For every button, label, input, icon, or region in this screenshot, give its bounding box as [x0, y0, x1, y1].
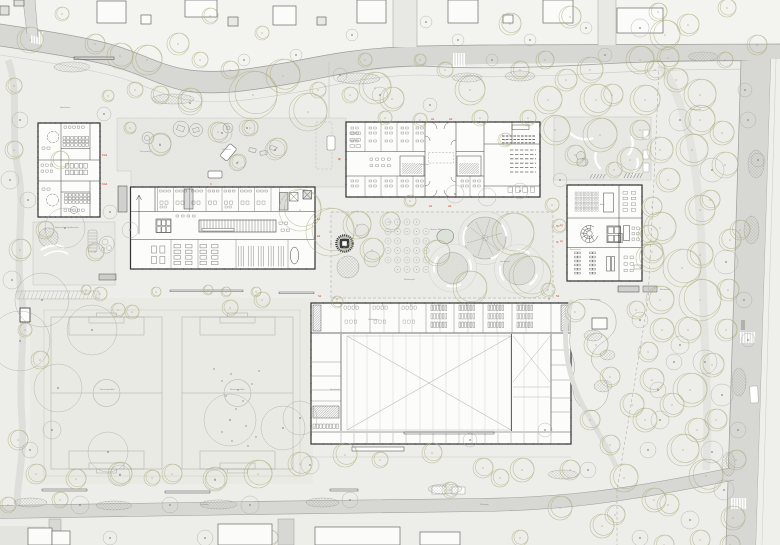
- svg-text:Umkleiden: Umkleiden: [368, 319, 379, 321]
- svg-text:II): II): [556, 240, 558, 244]
- svg-text:Rasenspielfeld: Rasenspielfeld: [100, 389, 115, 391]
- svg-text:Kletterspiel: Kletterspiel: [404, 278, 415, 281]
- svg-text:I I: I I: [336, 297, 338, 301]
- svg-text:Sporthalle: Sporthalle: [330, 388, 341, 391]
- svg-text:E2: E2: [317, 234, 321, 238]
- svg-text:Parkweg: Parkweg: [480, 503, 489, 506]
- svg-text:Sandspiel: Sandspiel: [500, 261, 510, 263]
- svg-text:M): M): [338, 157, 341, 161]
- svg-text:I I: I I: [548, 297, 550, 301]
- svg-text:Rasenspielfeld: Rasenspielfeld: [230, 389, 245, 391]
- svg-text:H1: H1: [431, 117, 435, 121]
- svg-text:II): II): [556, 224, 558, 228]
- svg-text:Spielwiese: Spielwiese: [60, 107, 71, 109]
- svg-text:H2: H2: [449, 117, 453, 121]
- svg-text:KG1: KG1: [102, 153, 108, 157]
- svg-text:Aula: Aula: [600, 203, 605, 206]
- svg-text:Schulhof: Schulhof: [222, 149, 231, 151]
- svg-text:I I: I I: [210, 182, 212, 186]
- svg-text:Promenade: Promenade: [690, 108, 702, 111]
- svg-text:Naturnaher Spielbereich: Naturnaher Spielbereich: [55, 226, 79, 229]
- svg-text:Pausenhof: Pausenhof: [140, 151, 151, 153]
- svg-text:Lernhaus: Lernhaus: [420, 163, 430, 166]
- svg-text:KG2: KG2: [102, 182, 108, 186]
- svg-text:Parkweg: Parkweg: [200, 503, 209, 506]
- svg-text:Gruene Mitte: Gruene Mitte: [430, 228, 443, 231]
- svg-text:Bewegung: Bewegung: [590, 299, 601, 301]
- svg-text:Speisesaal: Speisesaal: [570, 249, 581, 251]
- svg-text:S1: S1: [318, 294, 322, 298]
- svg-text:H1: H1: [429, 204, 433, 208]
- svg-text:H2: H2: [448, 204, 452, 208]
- svg-text:Baumhain: Baumhain: [660, 289, 671, 291]
- svg-text:S2: S2: [556, 294, 560, 298]
- svg-text:A(: A(: [560, 239, 563, 243]
- svg-text:A(: A(: [560, 223, 563, 227]
